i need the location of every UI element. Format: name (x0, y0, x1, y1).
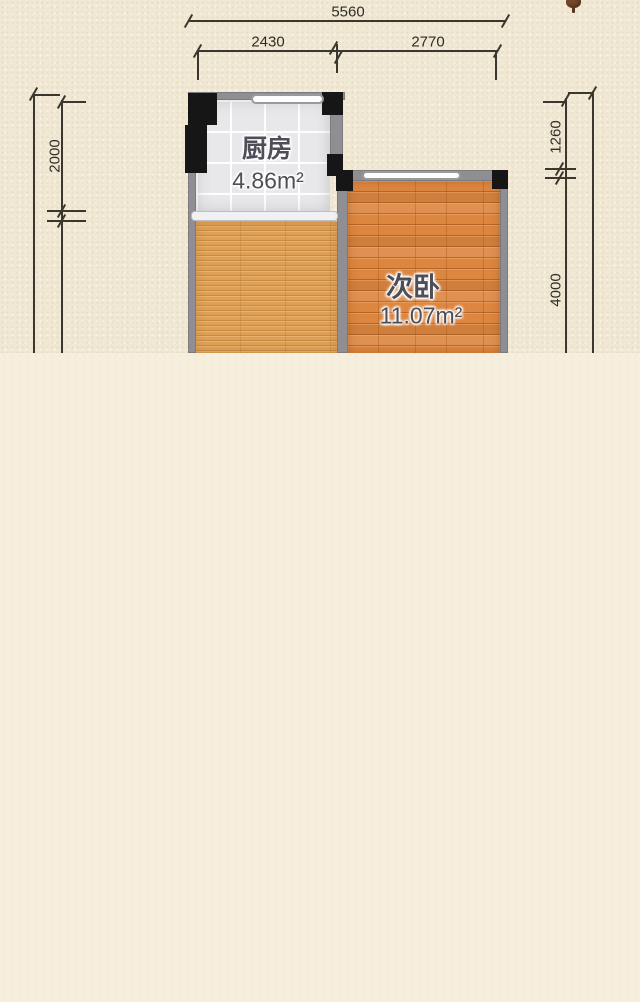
dim-extension-line (543, 101, 566, 103)
dim-break-stub (47, 210, 86, 212)
dim-break-stub (47, 220, 86, 222)
kitchen-room-label: 厨房 (242, 129, 292, 165)
dim-extension-line (495, 52, 497, 80)
dim-line-left-inner (61, 100, 63, 353)
dim-extension-line (34, 94, 60, 96)
dim-line-room-widths (197, 50, 497, 52)
bedroom-left-wall (337, 170, 348, 353)
hallway-floor (196, 221, 337, 353)
dim-label-bedroom-depth: 4000 (548, 273, 565, 306)
kitchen-area-label: 4.86m² (232, 168, 304, 195)
dim-label-kitchen-width: 2430 (251, 34, 284, 51)
kitchen-window (251, 94, 324, 104)
plant-stem-icon (572, 7, 575, 13)
bedroom-room-label: 次卧 (386, 266, 440, 305)
dim-extension-line (62, 101, 86, 103)
kitchen-door-sill (191, 211, 338, 221)
pillar (336, 170, 353, 191)
dim-line-right-outer (592, 91, 594, 353)
dim-extension-line (336, 44, 338, 73)
pillar (492, 170, 508, 189)
floorplan-image[interactable]: 5560 2430 2770 2000 1260 4000 (0, 0, 640, 353)
bedroom-window (362, 171, 461, 180)
bedroom-area-label: 11.07m² (380, 303, 463, 330)
dim-line-left-outer (33, 94, 35, 353)
pillar (185, 125, 207, 173)
dim-label-bedroom-width: 2770 (411, 34, 444, 51)
pillar (322, 92, 343, 115)
dim-label-total-width: 5560 (331, 4, 364, 21)
pillar (188, 93, 217, 125)
dim-extension-line (568, 92, 593, 94)
dim-line-right-inner (565, 98, 567, 353)
dim-label-right-upper: 1260 (548, 120, 565, 153)
bedroom-right-wall (500, 170, 508, 353)
dim-extension-line (197, 52, 199, 80)
page: { "plan": { "rooms": { "kitchen": { "lab… (0, 0, 640, 1002)
dim-label-kitchen-depth: 2000 (47, 139, 64, 172)
